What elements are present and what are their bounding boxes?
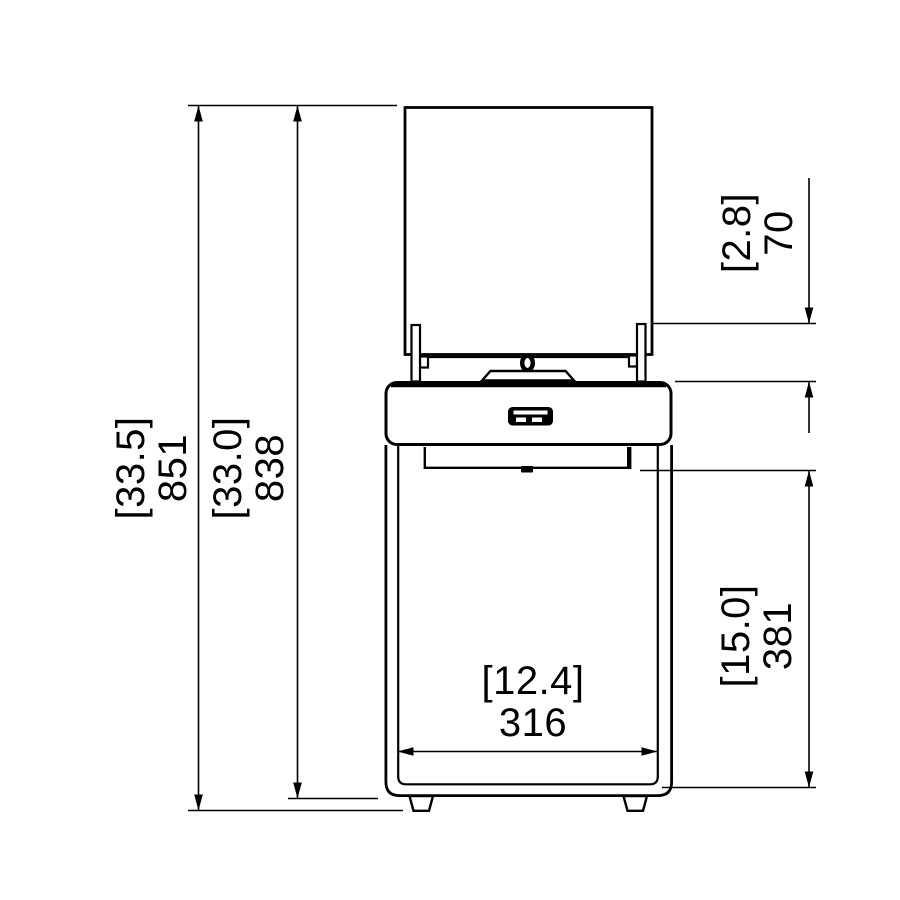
left-foot (410, 796, 434, 811)
arrow-right-icon (642, 747, 658, 756)
access-panel (425, 447, 629, 473)
arrow-up-icon (293, 106, 302, 122)
glass-screen (405, 108, 652, 355)
burner-lid (482, 371, 574, 381)
dim-overall-height-label: [33.5] 851 (110, 416, 194, 519)
dim-inches: [33.5] (110, 416, 152, 519)
arrow-up-icon (805, 382, 814, 398)
arrow-down-icon (805, 308, 814, 324)
arrow-up-icon (805, 471, 814, 487)
arrow-down-icon (293, 783, 302, 799)
dim-mm: 381 (757, 584, 799, 687)
dim-inches: [33.0] (207, 416, 249, 519)
latch-tab (521, 466, 533, 473)
technical-drawing: [33.5] 851 [33.0] 838 [2.8] 70 [15.0] 38… (0, 0, 900, 900)
dim-inches: [12.4] (481, 660, 584, 702)
arrow-left-icon (398, 747, 414, 756)
dim-mm: 851 (152, 416, 194, 519)
arrow-up-icon (194, 106, 203, 122)
dim-body-height-label: [33.0] 838 (207, 416, 291, 519)
arrow-down-icon (805, 772, 814, 788)
dim-inches: [2.8] (716, 193, 758, 273)
dim-mm: 838 (249, 416, 291, 519)
right-foot (624, 796, 648, 811)
dim-mm: 316 (481, 702, 584, 744)
dim-mm: 70 (758, 193, 800, 273)
arrow-down-icon (194, 795, 203, 811)
dim-inches: [15.0] (715, 584, 757, 687)
dim-base-height-label: [15.0] 381 (715, 584, 799, 687)
dim-inner-width-label: [12.4] 316 (481, 660, 584, 744)
burner-knob (522, 356, 533, 370)
dim-clip-height-label: [2.8] 70 (716, 193, 800, 273)
frame (386, 445, 672, 811)
power-port (508, 407, 553, 426)
